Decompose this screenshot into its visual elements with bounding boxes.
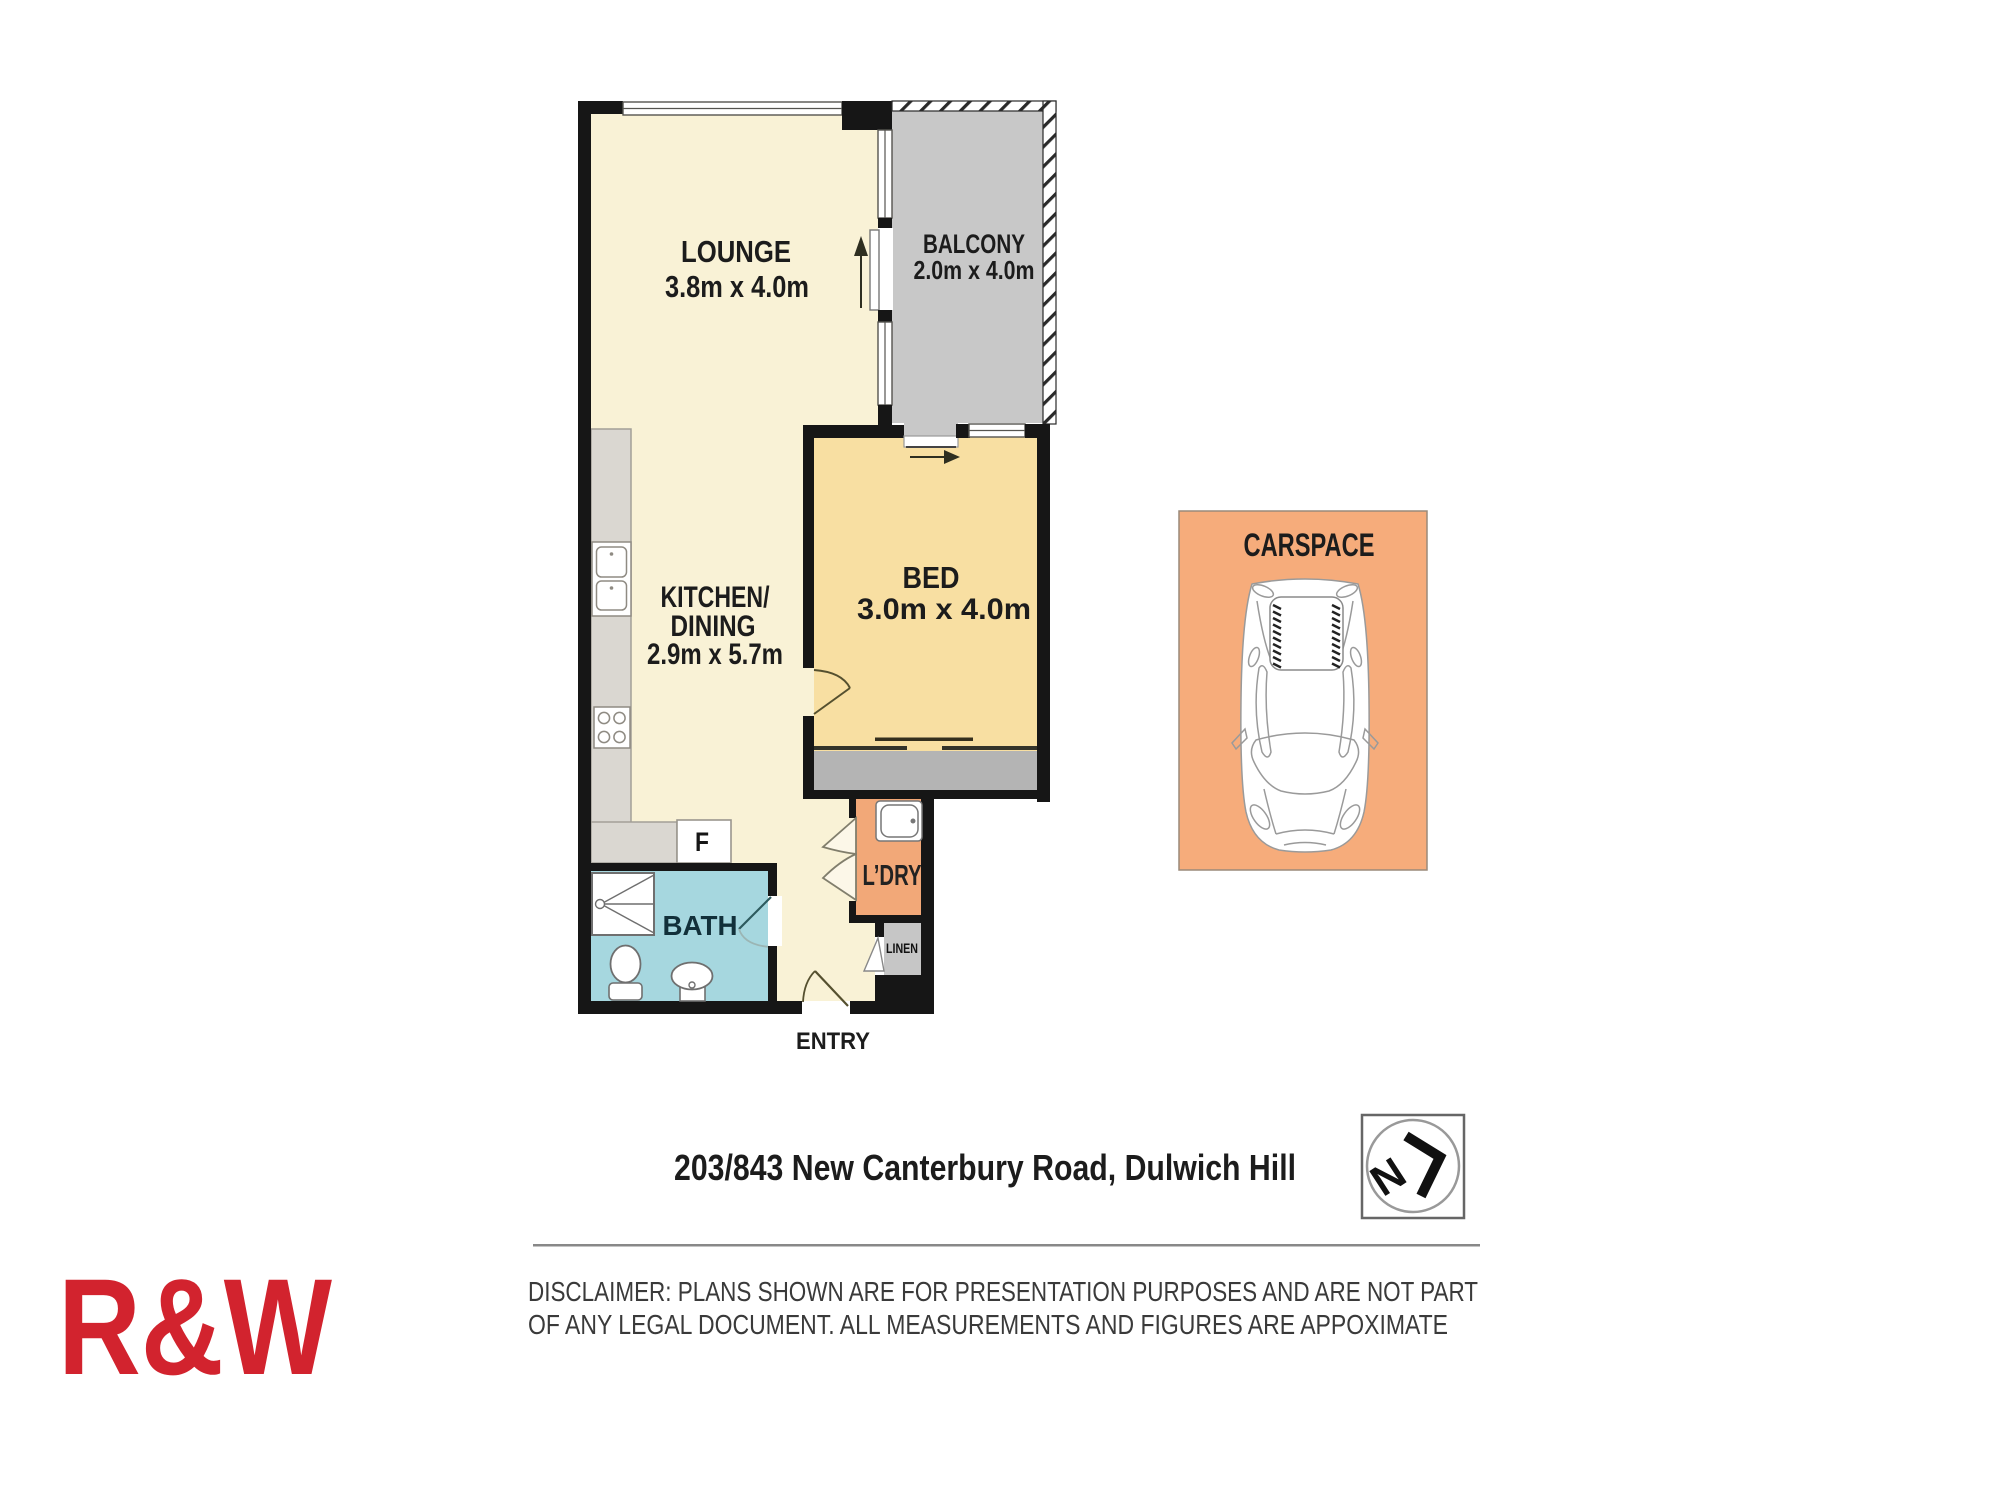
svg-text:3.0m x 4.0m: 3.0m x 4.0m	[857, 593, 1031, 626]
svg-text:2.0m x 4.0m: 2.0m x 4.0m	[914, 255, 1035, 285]
svg-text:CARSPACE: CARSPACE	[1244, 527, 1375, 563]
svg-text:BATH: BATH	[663, 910, 738, 941]
svg-text:LINEN: LINEN	[886, 940, 918, 956]
svg-text:203/843 New Canterbury Road, D: 203/843 New Canterbury Road, Dulwich Hil…	[674, 1147, 1296, 1188]
svg-text:BED: BED	[903, 560, 960, 595]
svg-text:DISCLAIMER: PLANS SHOWN ARE FO: DISCLAIMER: PLANS SHOWN ARE FOR PRESENTA…	[528, 1276, 1478, 1307]
svg-text:LOUNGE: LOUNGE	[681, 234, 791, 269]
svg-text:L’DRY: L’DRY	[863, 860, 922, 892]
svg-text:F: F	[695, 827, 709, 857]
svg-text:R&W: R&W	[58, 1251, 333, 1404]
svg-text:3.8m x 4.0m: 3.8m x 4.0m	[665, 269, 809, 304]
svg-text:ENTRY: ENTRY	[796, 1028, 870, 1055]
svg-text:2.9m x 5.7m: 2.9m x 5.7m	[647, 638, 783, 671]
svg-text:OF ANY LEGAL DOCUMENT. ALL MEA: OF ANY LEGAL DOCUMENT. ALL MEASUREMENTS …	[528, 1309, 1448, 1340]
